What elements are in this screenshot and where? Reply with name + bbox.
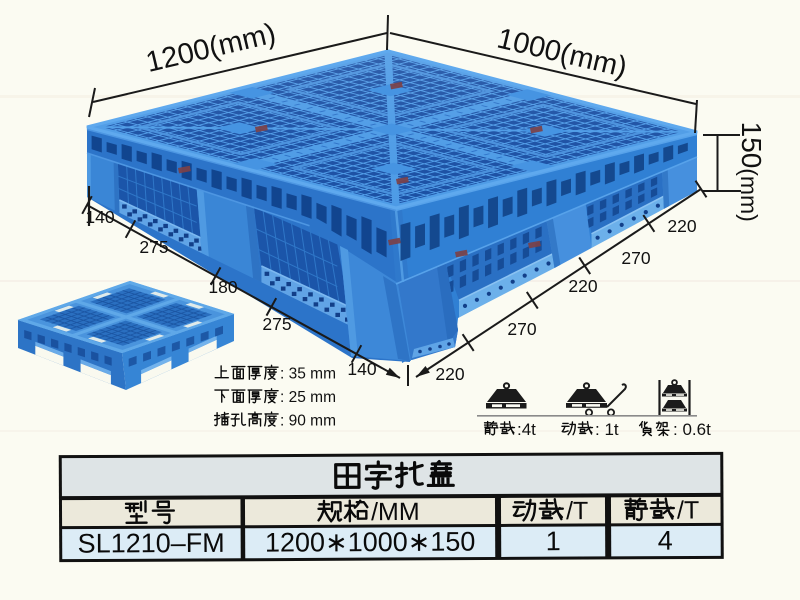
svg-text:: 90 mm: : 90 mm [280,412,336,429]
svg-text:/MM: /MM [371,498,420,526]
svg-text:140: 140 [347,359,376,379]
svg-text:: 0.6t: : 0.6t [673,420,711,439]
svg-text:220: 220 [667,216,696,236]
svg-text:220: 220 [435,364,464,384]
svg-text:: 25 mm: : 25 mm [280,389,336,406]
svg-text::4t: :4t [517,420,536,439]
svg-text:1200∗1000∗150: 1200∗1000∗150 [265,527,476,558]
svg-text:220: 220 [568,276,597,296]
svg-text:180: 180 [208,277,237,297]
svg-text:: 1t: : 1t [595,420,619,439]
svg-text:150: 150 [736,122,767,169]
svg-text:275: 275 [139,237,168,257]
svg-text:: 35 mm: : 35 mm [280,366,336,383]
svg-text:270: 270 [621,248,650,268]
svg-text:1: 1 [546,526,561,556]
svg-text:275: 275 [262,314,291,334]
svg-text:(mm): (mm) [736,168,762,222]
svg-text:270: 270 [507,319,536,339]
svg-text:/T: /T [566,497,588,525]
svg-text:SL1210–FM: SL1210–FM [78,528,225,559]
svg-text:4: 4 [658,526,673,556]
svg-text:/T: /T [677,496,699,524]
